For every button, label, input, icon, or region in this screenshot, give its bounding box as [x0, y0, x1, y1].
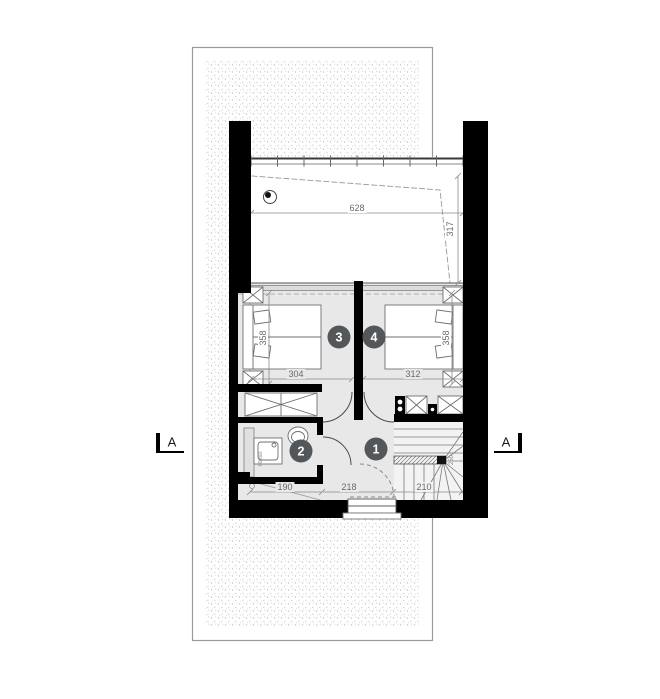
duct-block-1	[395, 396, 405, 415]
dim-label-washer-size: 60x60	[256, 452, 266, 467]
section-marker-bar-right	[518, 433, 522, 453]
dim-label-hall-width: 218	[339, 482, 358, 492]
floor-plan-drawing	[0, 0, 660, 699]
room-badge-1: 1	[365, 438, 388, 461]
wall-bottom-left	[229, 500, 352, 518]
room-badge-4: 4	[363, 326, 386, 349]
dim-label-bedroom3-depth: 358	[258, 328, 268, 347]
section-marker-bar-left	[156, 433, 160, 453]
bed-room4	[385, 305, 463, 369]
dim-label-stair-width: 210	[414, 482, 433, 492]
bottom-window	[343, 497, 401, 519]
section-marker-letter-left: A	[168, 435, 177, 450]
handrail-post	[437, 456, 446, 464]
hall-wardrobe	[245, 393, 317, 416]
dim-label-bedroom3-width: 304	[286, 369, 305, 379]
dim-label-terrace-width: 628	[347, 203, 366, 213]
room-badge-3: 3	[328, 326, 351, 349]
wall-bottom-right	[394, 500, 488, 518]
duct-block-2	[428, 404, 437, 415]
room-badge-2: 2	[290, 440, 313, 463]
wall-bedroom-south	[238, 384, 322, 392]
dim-label-terrace-depth: 317	[445, 219, 455, 238]
wall-left	[229, 285, 238, 518]
pillow	[435, 310, 453, 324]
section-marker-letter-right: A	[502, 435, 511, 450]
pillow	[253, 310, 271, 324]
dim-label-bathroom-width: 190	[275, 482, 294, 492]
wall-bathroom-east-upper	[317, 417, 323, 435]
floor-plan-page: 628 317 304 312 358 358 190 218 210 250 …	[0, 0, 660, 699]
wall-bathroom-north	[238, 417, 323, 423]
wall-bedroom-divider	[354, 281, 363, 420]
wall-corner-post	[238, 472, 250, 484]
wall-right	[463, 121, 488, 518]
dim-label-stair-flight: 250	[447, 455, 457, 465]
section-marker-line-left	[156, 451, 184, 453]
bed-room3	[243, 305, 321, 369]
bathroom-counter	[244, 428, 254, 477]
wall-left-pillar	[229, 121, 251, 293]
dim-label-bedroom4-width: 312	[403, 369, 422, 379]
terrace-floor	[251, 157, 463, 283]
dim-label-bedroom4-depth: 358	[441, 328, 451, 347]
wall-stair-north	[394, 414, 463, 422]
drain-icon	[264, 191, 277, 204]
